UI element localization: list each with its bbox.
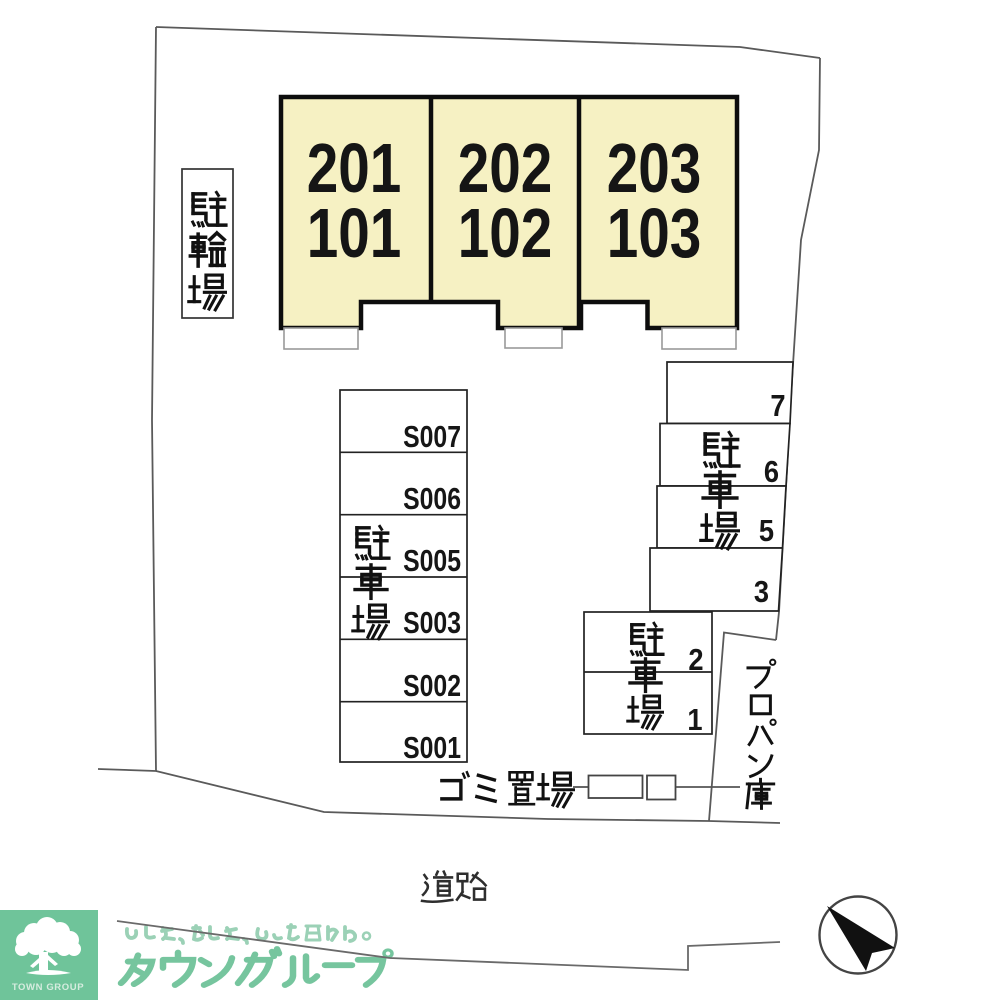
svg-text:S002: S002 bbox=[403, 668, 461, 702]
svg-text:6: 6 bbox=[764, 455, 779, 489]
svg-text:S006: S006 bbox=[403, 481, 461, 515]
svg-text:3: 3 bbox=[754, 575, 769, 609]
svg-text:102: 102 bbox=[458, 194, 553, 272]
svg-text:S003: S003 bbox=[403, 605, 461, 639]
svg-text:2: 2 bbox=[688, 643, 703, 677]
svg-text:TOWN GROUP: TOWN GROUP bbox=[12, 982, 84, 993]
svg-text:S001: S001 bbox=[403, 730, 461, 764]
svg-text:7: 7 bbox=[770, 389, 785, 423]
svg-text:S007: S007 bbox=[403, 419, 461, 453]
svg-text:S005: S005 bbox=[403, 543, 461, 577]
svg-text:101: 101 bbox=[307, 194, 402, 272]
svg-text:1: 1 bbox=[687, 703, 702, 737]
svg-text:103: 103 bbox=[607, 194, 702, 272]
svg-text:5: 5 bbox=[759, 514, 774, 548]
